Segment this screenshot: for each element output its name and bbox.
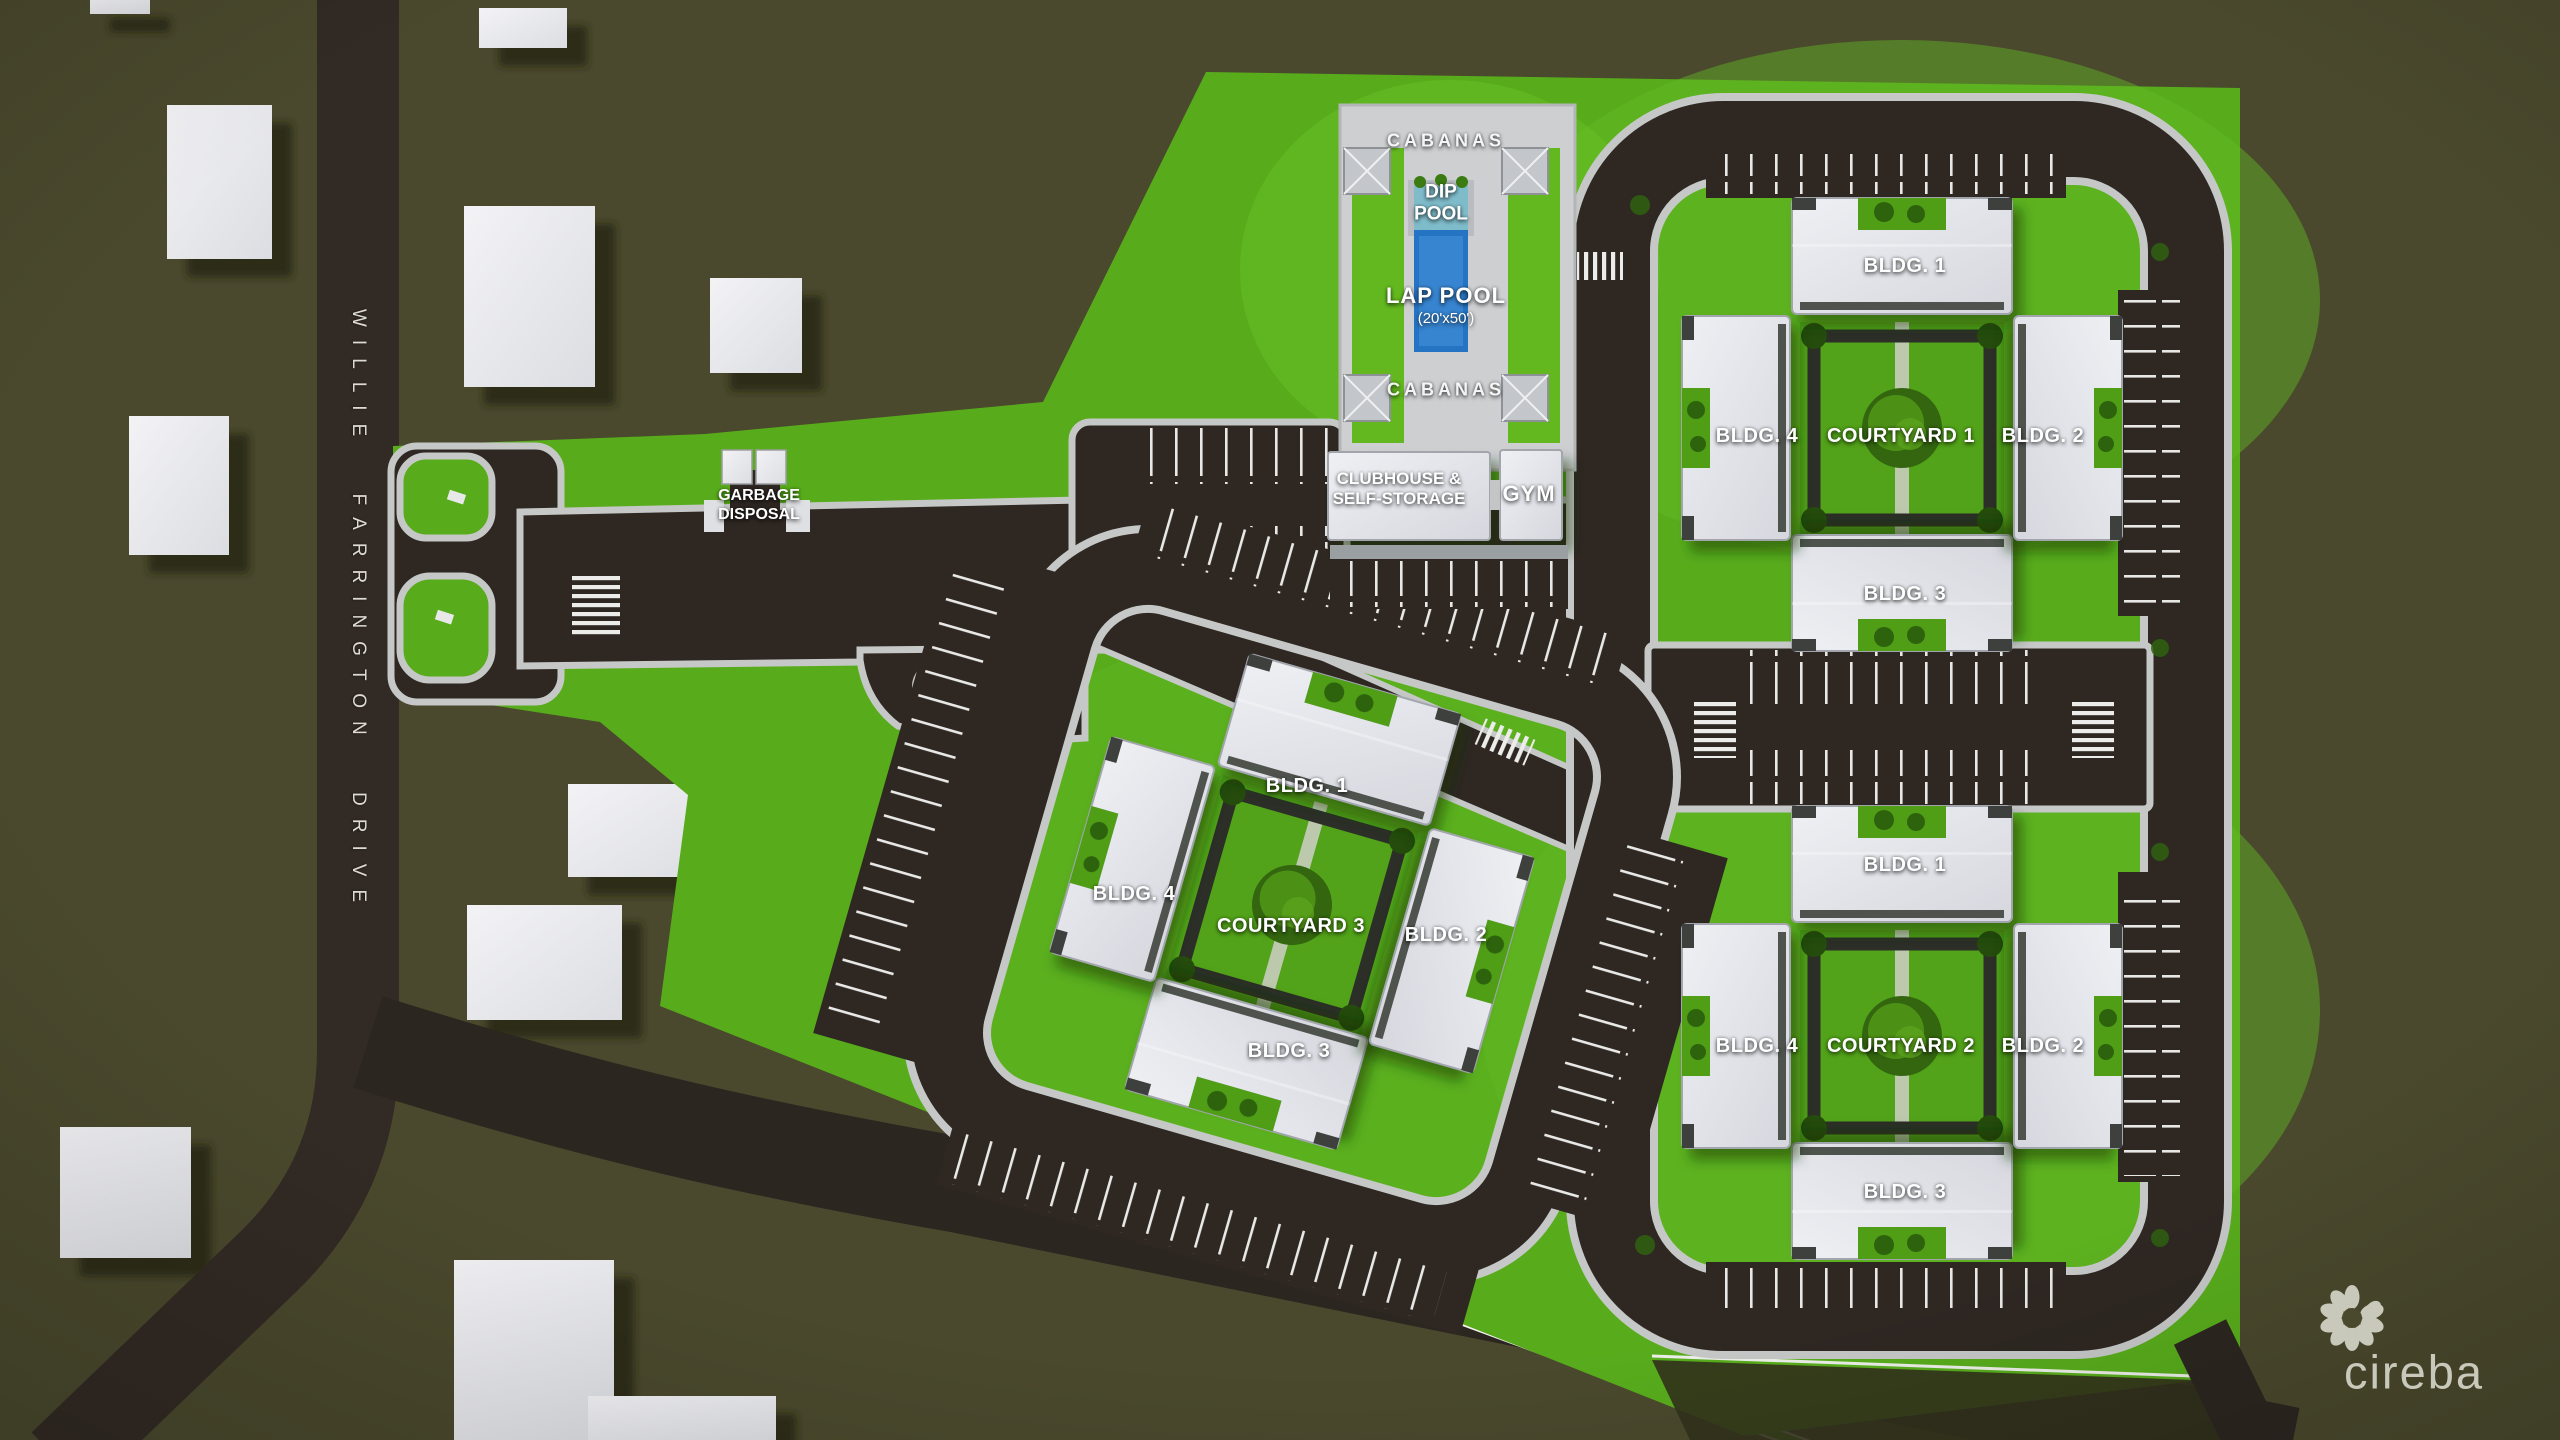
site-plan-map: WILLIE FARRINGTON DRIVE GARBAGE DISPOSAL…	[0, 0, 2560, 1440]
garbage-disposal-label: GARBAGE DISPOSAL	[704, 487, 814, 525]
cluster3-bldg2-label: BLDG. 2	[1405, 924, 1487, 948]
cluster3-bldg3-label: BLDG. 3	[1248, 1040, 1330, 1064]
cluster1-bldg4-label: BLDG. 4	[1716, 425, 1798, 449]
clubhouse-label: CLUBHOUSE & SELF-STORAGE	[1322, 469, 1477, 509]
cluster1-bldg2-label: BLDG. 2	[2002, 425, 2084, 449]
vignette-overlay	[0, 0, 2560, 1440]
cluster1-bldg1-label: BLDG. 1	[1864, 255, 1946, 279]
gym-label: GYM	[1502, 481, 1555, 507]
cluster1-bldg3-label: BLDG. 3	[1864, 583, 1946, 607]
cabanas-top-label: CABANAS	[1387, 130, 1505, 151]
lap-pool-label: LAP POOL	[1386, 283, 1506, 309]
cluster3-courtyard-label: COURTYARD 3	[1217, 915, 1365, 939]
cireba-logo-text: cireba	[2344, 1345, 2484, 1400]
cluster3-bldg4-label: BLDG. 4	[1093, 883, 1175, 907]
cluster2-bldg4-label: BLDG. 4	[1716, 1035, 1798, 1059]
cabanas-bottom-label: CABANAS	[1387, 379, 1505, 400]
site-plan-graphic	[0, 0, 2560, 1440]
cluster2-courtyard-label: COURTYARD 2	[1827, 1035, 1975, 1059]
street-name-label: WILLIE FARRINGTON DRIVE	[347, 309, 369, 915]
cluster1-courtyard-label: COURTYARD 1	[1827, 425, 1975, 449]
cluster2-bldg2-label: BLDG. 2	[2002, 1035, 2084, 1059]
cluster3-bldg1-label: BLDG. 1	[1266, 775, 1348, 799]
lap-pool-size-label: (20'x50')	[1418, 310, 1475, 328]
cluster2-bldg3-label: BLDG. 3	[1864, 1181, 1946, 1205]
cluster2-bldg1-label: BLDG. 1	[1864, 854, 1946, 878]
dip-pool-label: DIP POOL	[1406, 182, 1476, 227]
